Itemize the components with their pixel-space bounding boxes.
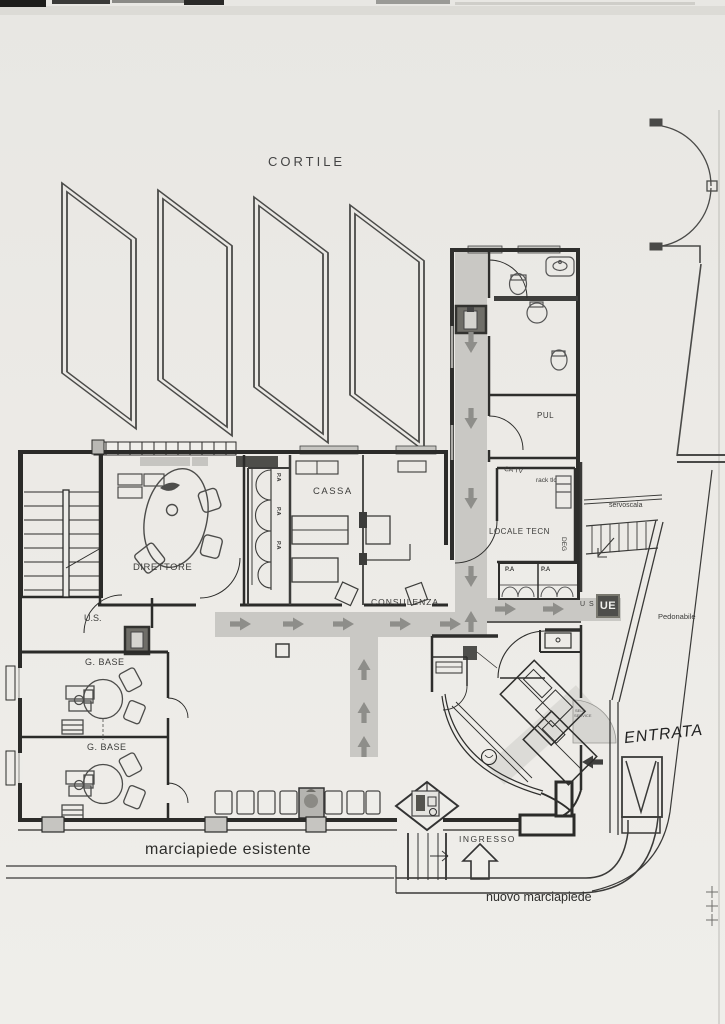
entry-direction-arrow — [582, 756, 603, 769]
director-room-label: DIRETTORE — [133, 563, 192, 573]
courtyard-label: CORTILE — [268, 155, 345, 168]
pa-cell-2-label: P.A — [541, 567, 550, 573]
circulation-bands — [215, 250, 621, 757]
waiting-chairs — [215, 788, 380, 818]
plant-icon — [299, 788, 324, 818]
new-sidewalk-label: nuovo marciapiede — [486, 891, 592, 904]
pa-cell-1-label: P.A — [505, 567, 514, 573]
pa-teller-1-label: P.A — [275, 473, 281, 481]
gbase-room-2-label: G. BASE — [87, 743, 127, 752]
floor-plan-drawing — [0, 0, 725, 1024]
director-office — [118, 463, 223, 575]
emergency-exit-text: UE — [600, 600, 616, 612]
column-marker — [276, 644, 289, 657]
pa-teller-3-label: P.A — [275, 541, 281, 549]
cash-room — [292, 455, 428, 606]
courtyard-boundary — [650, 119, 725, 462]
gbase-rooms — [6, 652, 188, 822]
cleaning-room-label: PUL — [537, 412, 554, 420]
entrance-label: INGRESSO — [459, 835, 516, 844]
deg-label: DEG — [560, 537, 567, 551]
flow-arrows — [230, 332, 603, 769]
existing-sidewalk-label: marciapiede esistente — [145, 842, 311, 858]
stairlift-label: servoscala — [609, 502, 642, 509]
pa-teller-2-label: P.A — [275, 507, 281, 515]
ingresso-arrow-icon — [463, 844, 497, 879]
exit-us-label: U S — [580, 601, 595, 608]
gbase1-furniture — [62, 667, 146, 740]
servoscala-stair — [586, 520, 658, 557]
pedestrian-path-label: Pedonabile — [658, 613, 696, 621]
fire-extinguisher-icon — [456, 306, 486, 333]
rack-label: rack tlc — [536, 478, 557, 485]
consulting-path-label: CONSULENZA — [371, 598, 439, 607]
gbase2-furniture — [62, 752, 146, 819]
cash-room-label: CASSA — [313, 487, 353, 497]
gbase-room-1-label: G. BASE — [85, 658, 125, 667]
extinguisher-box-hall — [125, 627, 149, 654]
technical-room-label: LOCALE TECN — [489, 528, 550, 536]
parking-stalls — [62, 183, 424, 451]
teller-booths — [248, 455, 290, 605]
emergency-exit-badge: UE — [596, 594, 620, 618]
stairs-left — [22, 440, 104, 597]
self-service-label-2: SERVICE — [574, 714, 592, 718]
us-door-label: U.S. — [84, 614, 102, 623]
revolving-door — [396, 782, 458, 830]
floor-plan-page: CORTILE PUL CA TV rack tlc LOCALE TECN D… — [0, 0, 725, 1024]
